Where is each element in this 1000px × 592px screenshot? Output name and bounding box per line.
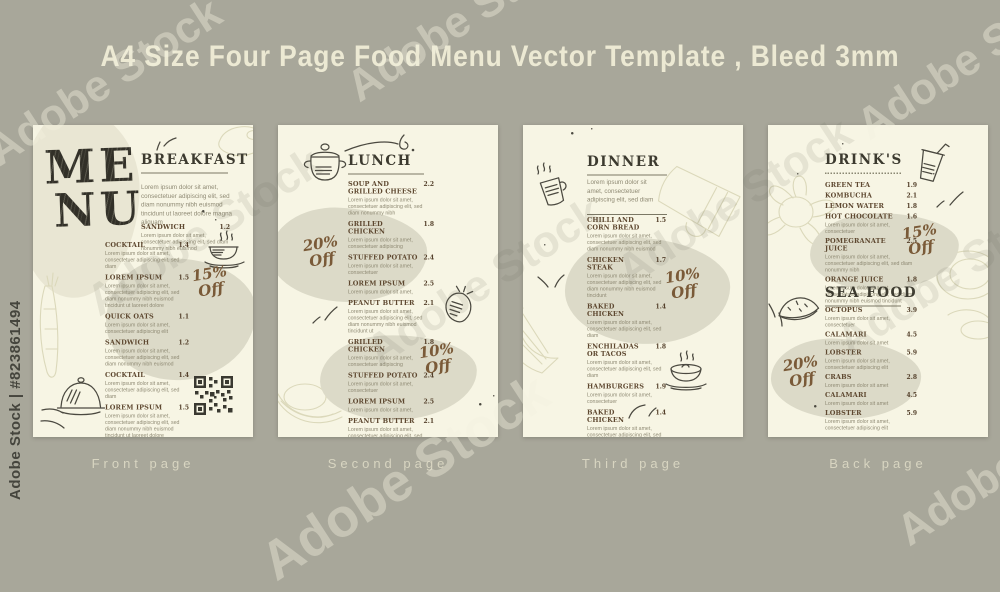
swoosh-marks-icon (37, 401, 69, 433)
menu-item: LOREM IPSUM 1.5 Lorem ipsum dolor sit am… (105, 404, 189, 437)
item-name: SANDWICH (141, 224, 185, 231)
swoosh-marks-icon (623, 401, 658, 423)
item-name: POMEGRANATE JUICE (825, 238, 903, 253)
item-desc: Lorem ipsum dolor sit amet, consectetuer… (105, 322, 189, 335)
dinner-intro: Lorem ipsum dolor sit amet, consectetuer… (587, 178, 662, 204)
leaf-marks-icon (932, 187, 967, 215)
item-price: 2.1 (424, 300, 434, 306)
menu-item: SANDWICH 1.2 Lorem ipsum dolor sit amet,… (105, 339, 189, 367)
leaf-marks-icon (768, 298, 787, 331)
item-name: CRABS (825, 374, 852, 381)
steaming-mug-icon (530, 161, 575, 216)
menu-item: STUFFED POTATO 2.4 Lorem ipsum dolor sit… (348, 254, 434, 275)
third-page: DINNER Lorem ipsum dolor sit amet, conse… (523, 125, 743, 437)
item-name: OCTOPUS (825, 307, 863, 314)
item-name: SOUP AND GRILLED CHEESE (348, 181, 420, 196)
item-name: STUFFED POTATO (348, 254, 418, 261)
discount-note: 15% Off (191, 263, 231, 300)
discount-note: 10% Off (664, 265, 704, 302)
menu-item: OCTOPUS 3.9 Lorem ipsum dolor sit amet, … (825, 307, 917, 328)
item-price: 1.8 (907, 203, 917, 209)
item-desc: Lorem ipsum dolor sit amet, consectetuer… (587, 425, 666, 437)
item-name: ORANGE JUICE (825, 276, 884, 283)
pages-row: ME NU BREAKFAST Lorem ipsum dolor sit am… (33, 125, 988, 437)
menu-logo: ME NU (44, 143, 145, 232)
item-price: 1.5 (179, 404, 189, 410)
discount-note-bottom: 10% Off (418, 340, 458, 377)
heading-rule (348, 174, 424, 175)
item-name: QUICK OATS (105, 313, 154, 320)
item-name: GRILLED CHICKEN (348, 339, 420, 354)
item-price: 1.5 (656, 217, 666, 223)
front-page: ME NU BREAKFAST Lorem ipsum dolor sit am… (33, 125, 253, 437)
item-name: KOMBUCHA (825, 192, 872, 199)
item-price: 3.9 (907, 307, 917, 313)
menu-item: COCKTAIL 1.4 Lorem ipsum dolor sit amet,… (105, 242, 189, 270)
menu-item: GREEN TEA 1.9 (825, 182, 917, 189)
item-name: CHICKEN STEAK (587, 257, 652, 272)
lunch-heading: LUNCH (348, 154, 438, 168)
menu-item: KOMBUCHA 2.1 (825, 192, 917, 199)
item-price: 2.1 (424, 418, 434, 424)
item-price: 2.5 (424, 398, 434, 404)
second-page-label: Second page (278, 456, 498, 472)
item-desc: Lorem ipsum dolor sit amet, consectetuer (348, 263, 434, 276)
seafood-heading: SEA FOOD (825, 286, 923, 300)
item-price: 4.5 (907, 331, 917, 337)
item-desc: Lorem ipsum dolor sit amet, consectetuer… (587, 319, 666, 339)
item-price: 5.9 (907, 410, 917, 416)
discount-note-seafood: 20% Off (782, 353, 822, 390)
item-name: LOREM IPSUM (105, 274, 162, 281)
heading-rule (825, 173, 901, 175)
item-price: 5.9 (907, 349, 917, 355)
item-name: LOREM IPSUM (348, 398, 405, 405)
item-desc: Lorem ipsum dolor sit amet, consectetuer… (825, 418, 917, 431)
item-name: PEANUT BUTTER (348, 300, 415, 307)
seafood-item-list: OCTOPUS 3.9 Lorem ipsum dolor sit amet, … (825, 307, 917, 434)
banner-title: A4 Size Four Page Food Menu Vector Templ… (0, 40, 1000, 73)
item-price: 2.1 (907, 192, 917, 198)
item-desc: Lorem ipsum dolor sit amet, consectetuer… (825, 358, 917, 371)
item-name: LOREM IPSUM (348, 280, 405, 287)
breakfast-heading: BREAKFAST (141, 153, 234, 167)
item-desc: Lorem ipsum dolor sit amet, consectetuer… (348, 426, 434, 437)
leaf-marks-icon (307, 303, 342, 327)
item-price: 1.8 (424, 221, 434, 227)
item-price: 4.5 (907, 392, 917, 398)
item-desc: Lorem ipsum dolor sit amet, consectetuer (825, 315, 917, 328)
item-name: LEMON WATER (825, 203, 884, 210)
third-page-label: Third page (523, 456, 743, 472)
menu-item: COCKTAIL 1.4 Lorem ipsum dolor sit amet,… (105, 372, 189, 400)
item-desc: Lorem ipsum dolor sit amet (825, 400, 917, 407)
menu-item: PEANUT BUTTER 2.1 Lorem ipsum dolor sit … (348, 300, 434, 335)
menu-item: CALAMARI 4.5 Lorem ipsum dolor sit amet (825, 392, 917, 407)
item-name: CALAMARI (825, 392, 867, 399)
item-name: LOBSTER (825, 349, 862, 356)
item-name: HAMBURGERS (587, 383, 644, 390)
item-name: GREEN TEA (825, 182, 870, 189)
item-desc: Lorem ipsum dolor sit amet, consectetuer… (348, 197, 434, 217)
item-price: 2.8 (907, 374, 917, 380)
item-desc: Lorem ipsum dolor sit amet, consectetuer… (348, 308, 434, 334)
item-desc: Lorem ipsum dolor sit amet, consectetuer… (105, 250, 189, 270)
menu-item: LOBSTER 5.9 Lorem ipsum dolor sit amet, … (825, 410, 917, 431)
item-price: 1.1 (179, 313, 189, 319)
menu-item: LEMON WATER 1.8 (825, 203, 917, 210)
leaf-marks-icon (147, 133, 179, 153)
item-price: 1.4 (179, 372, 189, 378)
banner-title-text: A4 Size Four Page Food Menu Vector Templ… (100, 40, 899, 73)
item-desc: Lorem ipsum dolor sit amet, (348, 289, 434, 296)
item-desc: Lorem ipsum dolor sit amet, consectetuer… (105, 413, 189, 437)
menu-logo-line2: NU (53, 187, 145, 232)
item-desc: Lorem ipsum dolor sit amet, consectetuer… (587, 233, 666, 253)
breakfast-intro: Lorem ipsum dolor sit amet, consectetuer… (141, 183, 234, 227)
menu-item: LOREM IPSUM 1.5 Lorem ipsum dolor sit am… (105, 274, 189, 309)
heading-rule (141, 173, 228, 174)
menu-item: STUFFED POTATO 2.4 Lorem ipsum dolor sit… (348, 372, 434, 393)
item-desc: Lorem ipsum dolor sit amet, consectetuer… (587, 359, 666, 379)
item-desc: Lorem ipsum dolor sit amet, consectetuer… (587, 273, 666, 299)
item-desc: Lorem ipsum dolor sit amet, consectetuer (348, 381, 434, 394)
menu-item: CRABS 2.8 Lorem ipsum dolor sit amet (825, 374, 917, 389)
second-page: LUNCH SOUP AND GRILLED CHEESE 2.2 Lorem … (278, 125, 498, 437)
discount-note-top: 20% Off (302, 233, 342, 270)
menu-item: ENCHILADAS OR TACOS 1.8 Lorem ipsum dolo… (587, 343, 666, 378)
menu-item: BAKED CHICKEN 1.4 Lorem ipsum dolor sit … (587, 303, 666, 338)
item-name: CALAMARI (825, 331, 867, 338)
item-price: 1.6 (907, 213, 917, 219)
heading-rule (587, 175, 667, 176)
strawberry-icon (436, 282, 482, 330)
lemon-sketch (523, 298, 573, 383)
item-name: COCKTAIL (105, 242, 145, 249)
breakfast-item-list: COCKTAIL 1.4 Lorem ipsum dolor sit amet,… (105, 242, 189, 437)
qr-code (194, 376, 233, 415)
item-price: 2.5 (424, 280, 434, 286)
menu-item: GRILLED CHICKEN 1.8 Lorem ipsum dolor si… (348, 221, 434, 250)
teacup-icon (660, 349, 712, 395)
menu-item: CHICKEN STEAK 1.7 Lorem ipsum dolor sit … (587, 257, 666, 299)
back-page-label: Back page (768, 456, 988, 472)
item-desc: Lorem ipsum dolor sit amet, (348, 407, 434, 414)
footer-labels: Front page Second page Third page Back p… (33, 456, 988, 472)
item-price: 1.4 (179, 242, 189, 248)
check-marks-icon (533, 270, 568, 294)
discount-note-drinks: 15% Off (901, 221, 941, 258)
menu-item: CHILLI AND CORN BREAD 1.5 Lorem ipsum do… (587, 217, 666, 252)
lunch-item-list: SOUP AND GRILLED CHEESE 2.2 Lorem ipsum … (348, 181, 434, 437)
item-desc: Lorem ipsum dolor sit amet, consectetuer… (105, 380, 189, 400)
item-price: 1.7 (656, 257, 666, 263)
menu-item: LOREM IPSUM 2.5 Lorem ipsum dolor sit am… (348, 280, 434, 295)
front-page-label: Front page (33, 456, 253, 472)
intro-rule (587, 214, 667, 215)
menu-item: QUICK OATS 1.1 Lorem ipsum dolor sit ame… (105, 313, 189, 334)
item-desc: Lorem ipsum dolor sit amet, consectetuer… (348, 237, 434, 250)
back-page: DRINK'S (768, 125, 988, 437)
item-desc: Lorem ipsum dolor sit amet, consectetuer… (105, 283, 189, 309)
item-name: LOBSTER (825, 410, 862, 417)
item-price: 1.2 (179, 339, 189, 345)
item-name: ENCHILADAS OR TACOS (587, 343, 652, 358)
item-name: HOT CHOCOLATE (825, 213, 893, 220)
menu-item: PEANUT BUTTER 2.1 Lorem ipsum dolor sit … (348, 418, 434, 437)
item-price: 1.5 (179, 274, 189, 280)
item-desc: Lorem ipsum dolor sit amet (825, 340, 917, 347)
item-price: 1.4 (656, 303, 666, 309)
dinner-heading: DINNER (587, 155, 677, 169)
menu-item: LOREM IPSUM 2.5 Lorem ipsum dolor sit am… (348, 398, 434, 413)
item-desc: Lorem ipsum dolor sit amet, consectetuer… (105, 348, 189, 368)
stock-id-watermark: Adobe Stock | #823861494 (8, 300, 23, 500)
item-price: 1.8 (907, 276, 917, 282)
item-name: COCKTAIL (105, 372, 145, 379)
item-name: PEANUT BUTTER (348, 418, 415, 425)
item-price: 2.4 (424, 254, 434, 260)
item-name: CHILLI AND CORN BREAD (587, 217, 652, 232)
item-desc: Lorem ipsum dolor sit amet (825, 382, 917, 389)
item-desc: Lorem ipsum dolor sit amet, consectetuer… (825, 254, 917, 274)
item-name: SANDWICH (105, 339, 149, 346)
item-name: LOREM IPSUM (105, 404, 162, 411)
item-price: 1.9 (907, 182, 917, 188)
item-name: GRILLED CHICKEN (348, 221, 420, 236)
item-name: STUFFED POTATO (348, 372, 418, 379)
menu-item: LOBSTER 5.9 Lorem ipsum dolor sit amet, … (825, 349, 917, 370)
item-name: BAKED CHICKEN (587, 303, 652, 318)
item-price: 2.2 (424, 181, 434, 187)
menu-item: CALAMARI 4.5 Lorem ipsum dolor sit amet (825, 331, 917, 346)
carrot-sketch (33, 269, 76, 384)
menu-item: SOUP AND GRILLED CHEESE 2.2 Lorem ipsum … (348, 181, 434, 216)
